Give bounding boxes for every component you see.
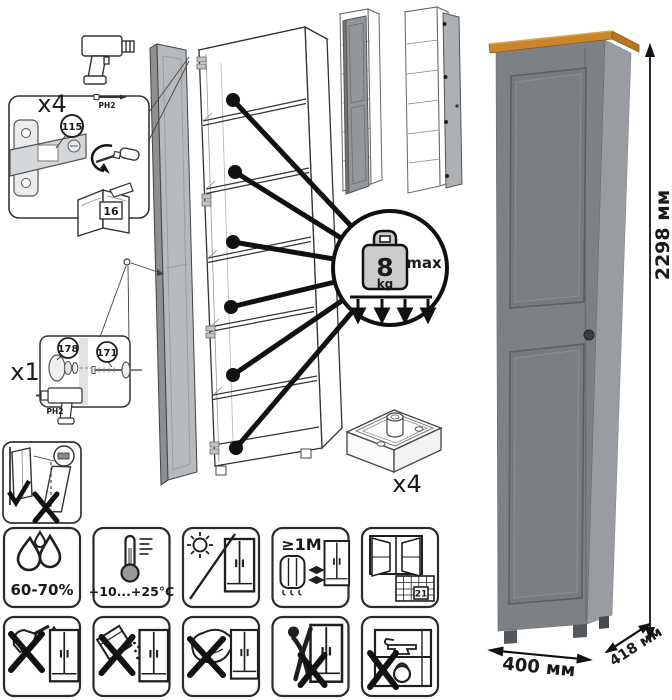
heat-distance-label: ≥1M	[281, 535, 321, 554]
mini-cabinet-right-hinged	[405, 7, 462, 193]
no-heavy-items-icon	[362, 617, 438, 696]
no-abrasive-powder-icon	[94, 617, 170, 696]
exploded-cabinet-drawing	[150, 27, 353, 485]
carcass-foot	[301, 449, 311, 458]
handle-callout: x1 178 171 PH2	[10, 259, 164, 424]
manual-page-number: 16	[103, 205, 119, 218]
drill-icon	[82, 36, 134, 84]
drill-bit-label-2: PH2	[47, 407, 64, 416]
airing-days-label: 21	[415, 590, 428, 600]
care-icons-row-1: 60-70% +10...+25°C	[4, 528, 438, 607]
load-qualifier: max	[406, 254, 442, 272]
anti-tip-warning	[3, 442, 81, 523]
load-unit: kg	[377, 277, 394, 291]
product-render	[489, 31, 639, 644]
no-solvents-icon	[4, 617, 80, 696]
height-label: 2298 мм	[652, 190, 672, 281]
carcass-foot	[216, 466, 226, 475]
instruction-drawing: 8 kg max	[0, 0, 672, 700]
foot-part-drawing: x4	[347, 410, 441, 498]
heat-distance-icon: ≥1M	[273, 528, 350, 607]
screwdriver-icon	[92, 145, 140, 174]
kettlebell-glyph	[394, 664, 410, 683]
knob-part-number: 178	[58, 344, 79, 355]
humidity-label: 60-70%	[10, 581, 73, 599]
calendar-glyph: 21	[396, 576, 434, 601]
dimension-height: 2298 мм	[645, 43, 672, 641]
no-direct-sunlight-icon	[183, 528, 259, 607]
mini-cabinet-left-hinged	[340, 9, 382, 194]
dimension-depth: 418 мм	[602, 617, 665, 670]
drill-bit-label: PH2	[99, 101, 116, 110]
manual-book-icon: 16	[78, 183, 133, 236]
door-side-options	[340, 7, 462, 194]
temperature-icon: +10...+25°C	[89, 528, 174, 607]
shelf-load-limit-badge: 8 kg max	[333, 211, 447, 325]
no-scouring-sponge-icon	[183, 617, 259, 696]
handle-qty-label: x1	[10, 358, 39, 386]
knob-hole-marker	[124, 259, 130, 265]
feet-qty-label: x4	[392, 470, 421, 498]
door-knob	[584, 330, 594, 340]
door-lower-panel	[509, 344, 584, 604]
screw-drawing	[92, 362, 142, 378]
temperature-label: +10...+25°C	[89, 584, 174, 599]
hinge-part-number: 115	[62, 122, 83, 133]
cabinet-door-open	[150, 44, 197, 485]
no-climbing-pulling-icon	[273, 617, 349, 696]
care-icons-row-2	[4, 617, 438, 696]
door-upper-panel	[510, 68, 586, 308]
screw-part-number: 171	[97, 348, 118, 359]
ventilation-icon: 21	[362, 528, 438, 607]
humidity-icon: 60-70%	[4, 528, 80, 607]
dimension-width: 400 мм	[485, 645, 593, 683]
hinge-qty-label: x4	[37, 90, 66, 118]
assembly-instruction-sheet: 8 kg max	[0, 0, 672, 700]
